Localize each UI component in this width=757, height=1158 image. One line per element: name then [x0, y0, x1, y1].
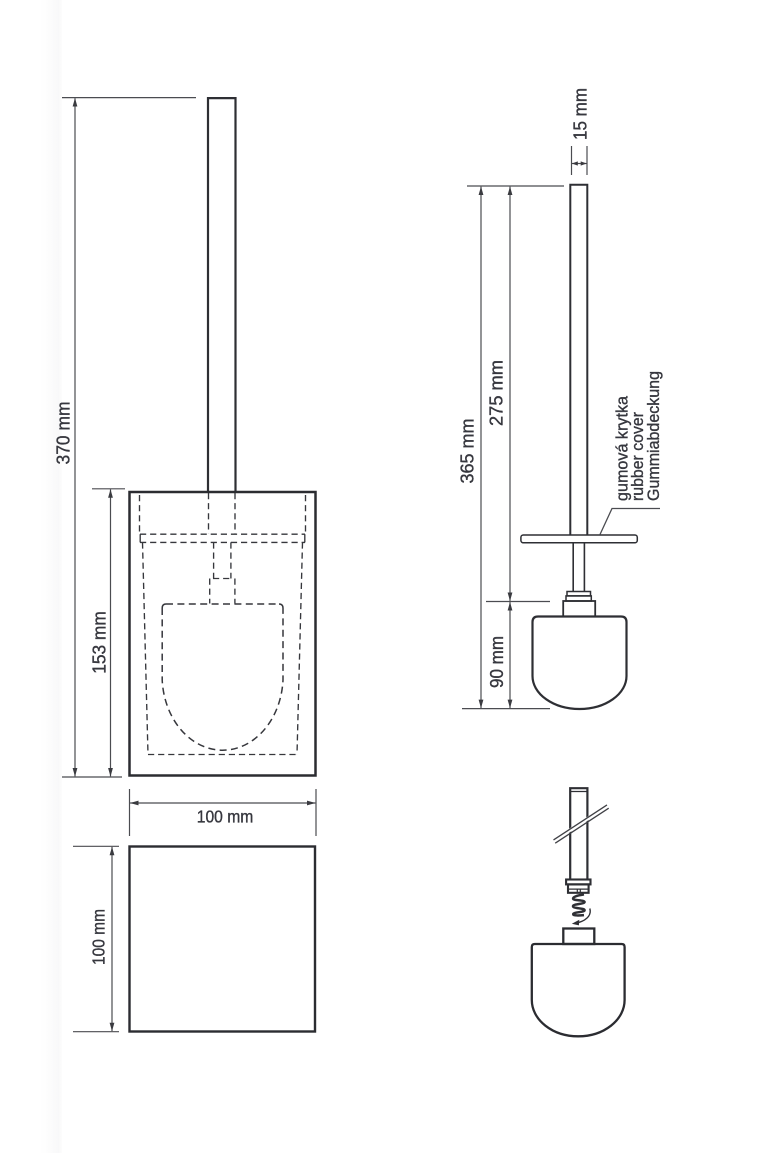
svg-text:370 mm: 370 mm: [54, 402, 74, 465]
svg-text:275 mm: 275 mm: [487, 360, 507, 426]
svg-text:15 mm: 15 mm: [571, 88, 591, 140]
svg-text:Gummiabdeckung: Gummiabdeckung: [644, 371, 663, 501]
svg-text:100 mm: 100 mm: [197, 807, 254, 827]
svg-text:153 mm: 153 mm: [89, 611, 109, 674]
svg-text:90 mm: 90 mm: [487, 636, 507, 688]
svg-text:365 mm: 365 mm: [457, 419, 477, 484]
svg-text:100 mm: 100 mm: [89, 909, 109, 965]
